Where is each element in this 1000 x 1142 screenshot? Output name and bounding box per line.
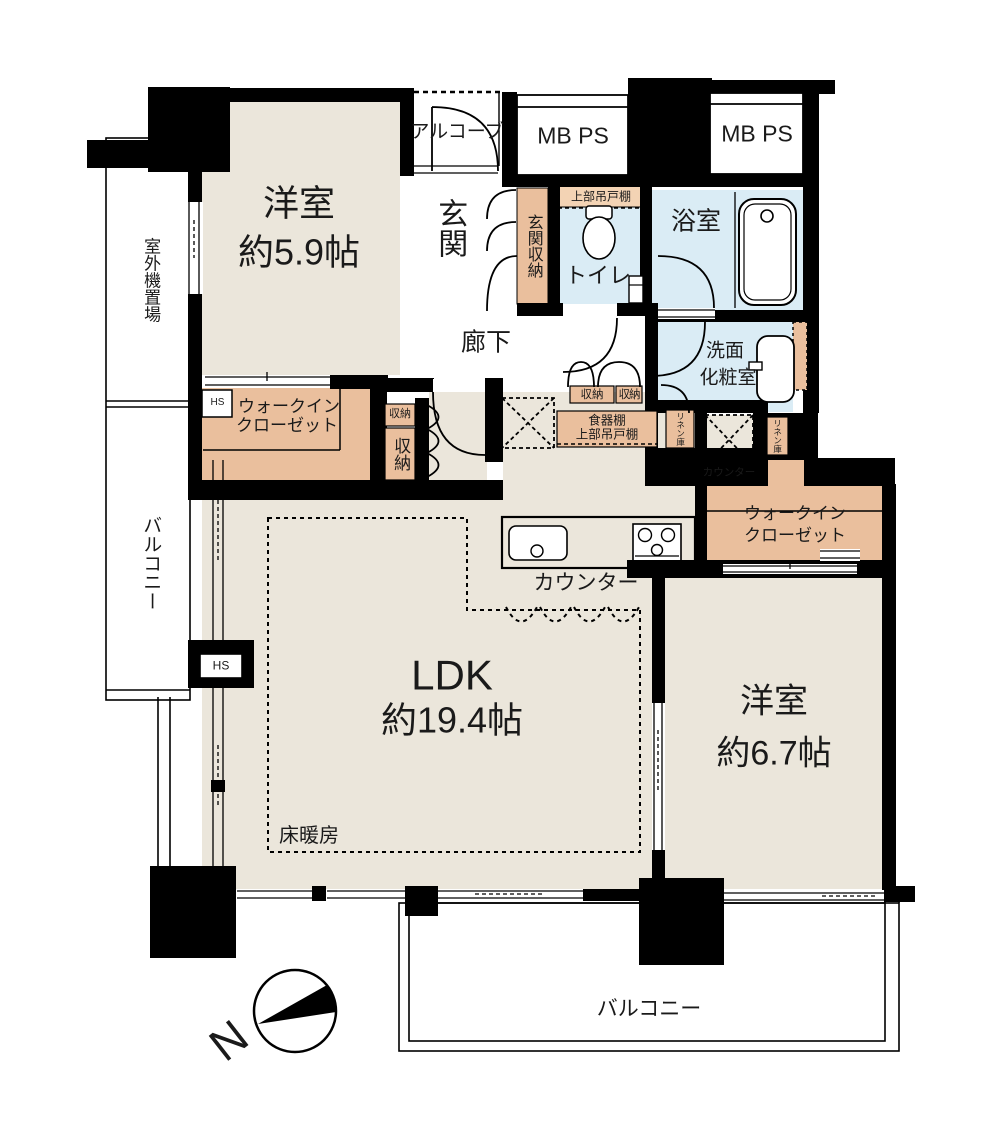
floor-heating-label: 床暖房 [279, 826, 339, 848]
alcove-label: アルコーブ [410, 123, 503, 144]
wic-right-label-line1: ウォークイン [744, 505, 846, 523]
storage-double-door-arcs [568, 362, 640, 387]
outdoor-unit-label: 室外機置場 [141, 238, 159, 323]
storage-pair-label-1: 収納 [581, 389, 604, 401]
hs-label-wic: HS [211, 398, 222, 408]
balcony-left-label: バルコニー [140, 516, 161, 611]
floorplan: 洋室 約5.9帖 アルコーブ MB PS MB PS 玄関 玄関収納 上部吊戸棚… [0, 0, 1000, 1142]
ldk-size: 約19.4帖 [381, 702, 523, 741]
storage-tall-label: 収納 [391, 437, 409, 471]
storage-small-label: 収納 [389, 409, 411, 421]
toilet-label: トイレ [565, 264, 631, 288]
storage-pair-label-2: 収納 [619, 389, 640, 401]
wic-right-label-line2: クローゼット [744, 527, 846, 545]
washroom-label-line1: 洗面 [706, 342, 744, 363]
cupboard-label-line2: 上部吊戸棚 [576, 428, 639, 442]
linen-left-label: リネン庫 [675, 411, 684, 447]
counter-kitchen-label: カウンター [534, 573, 639, 596]
bathtub [739, 199, 796, 305]
room-west2-size: 約6.7帖 [716, 736, 831, 773]
mb-ps-label-1: MB PS [537, 124, 609, 149]
hallway-label: 廊下 [461, 330, 511, 357]
wic-left-label-line2: クローゼット [236, 417, 338, 435]
linen-right-label: リネン庫 [772, 418, 781, 454]
compass [254, 970, 336, 1052]
entrance-storage-door-arcs [487, 190, 517, 311]
balcony-bottom-label: バルコニー [597, 999, 702, 1022]
ldk-name: LDK [411, 652, 493, 697]
bathroom-label: 浴室 [671, 209, 721, 236]
upper-cabinet-label: 上部吊戸棚 [571, 191, 631, 204]
mb-ps-label-2: MB PS [721, 122, 793, 147]
washroom-label-line2: 化粧室 [699, 369, 756, 390]
room-west1-size: 約5.9帖 [238, 234, 360, 273]
room-west1-name: 洋室 [263, 185, 335, 224]
counter-small-label: カウンター [703, 467, 756, 478]
wic-left-label-line1: ウォークイン [238, 398, 340, 416]
hs-label-ldk: HS [213, 660, 230, 673]
entrance-storage-label: 玄関収納 [524, 214, 541, 278]
entrance-label: 玄関 [433, 198, 465, 258]
room-west2-name: 洋室 [740, 684, 808, 721]
cupboard-label-line1: 食器棚 [588, 414, 626, 428]
refrigerator-space [502, 398, 554, 448]
